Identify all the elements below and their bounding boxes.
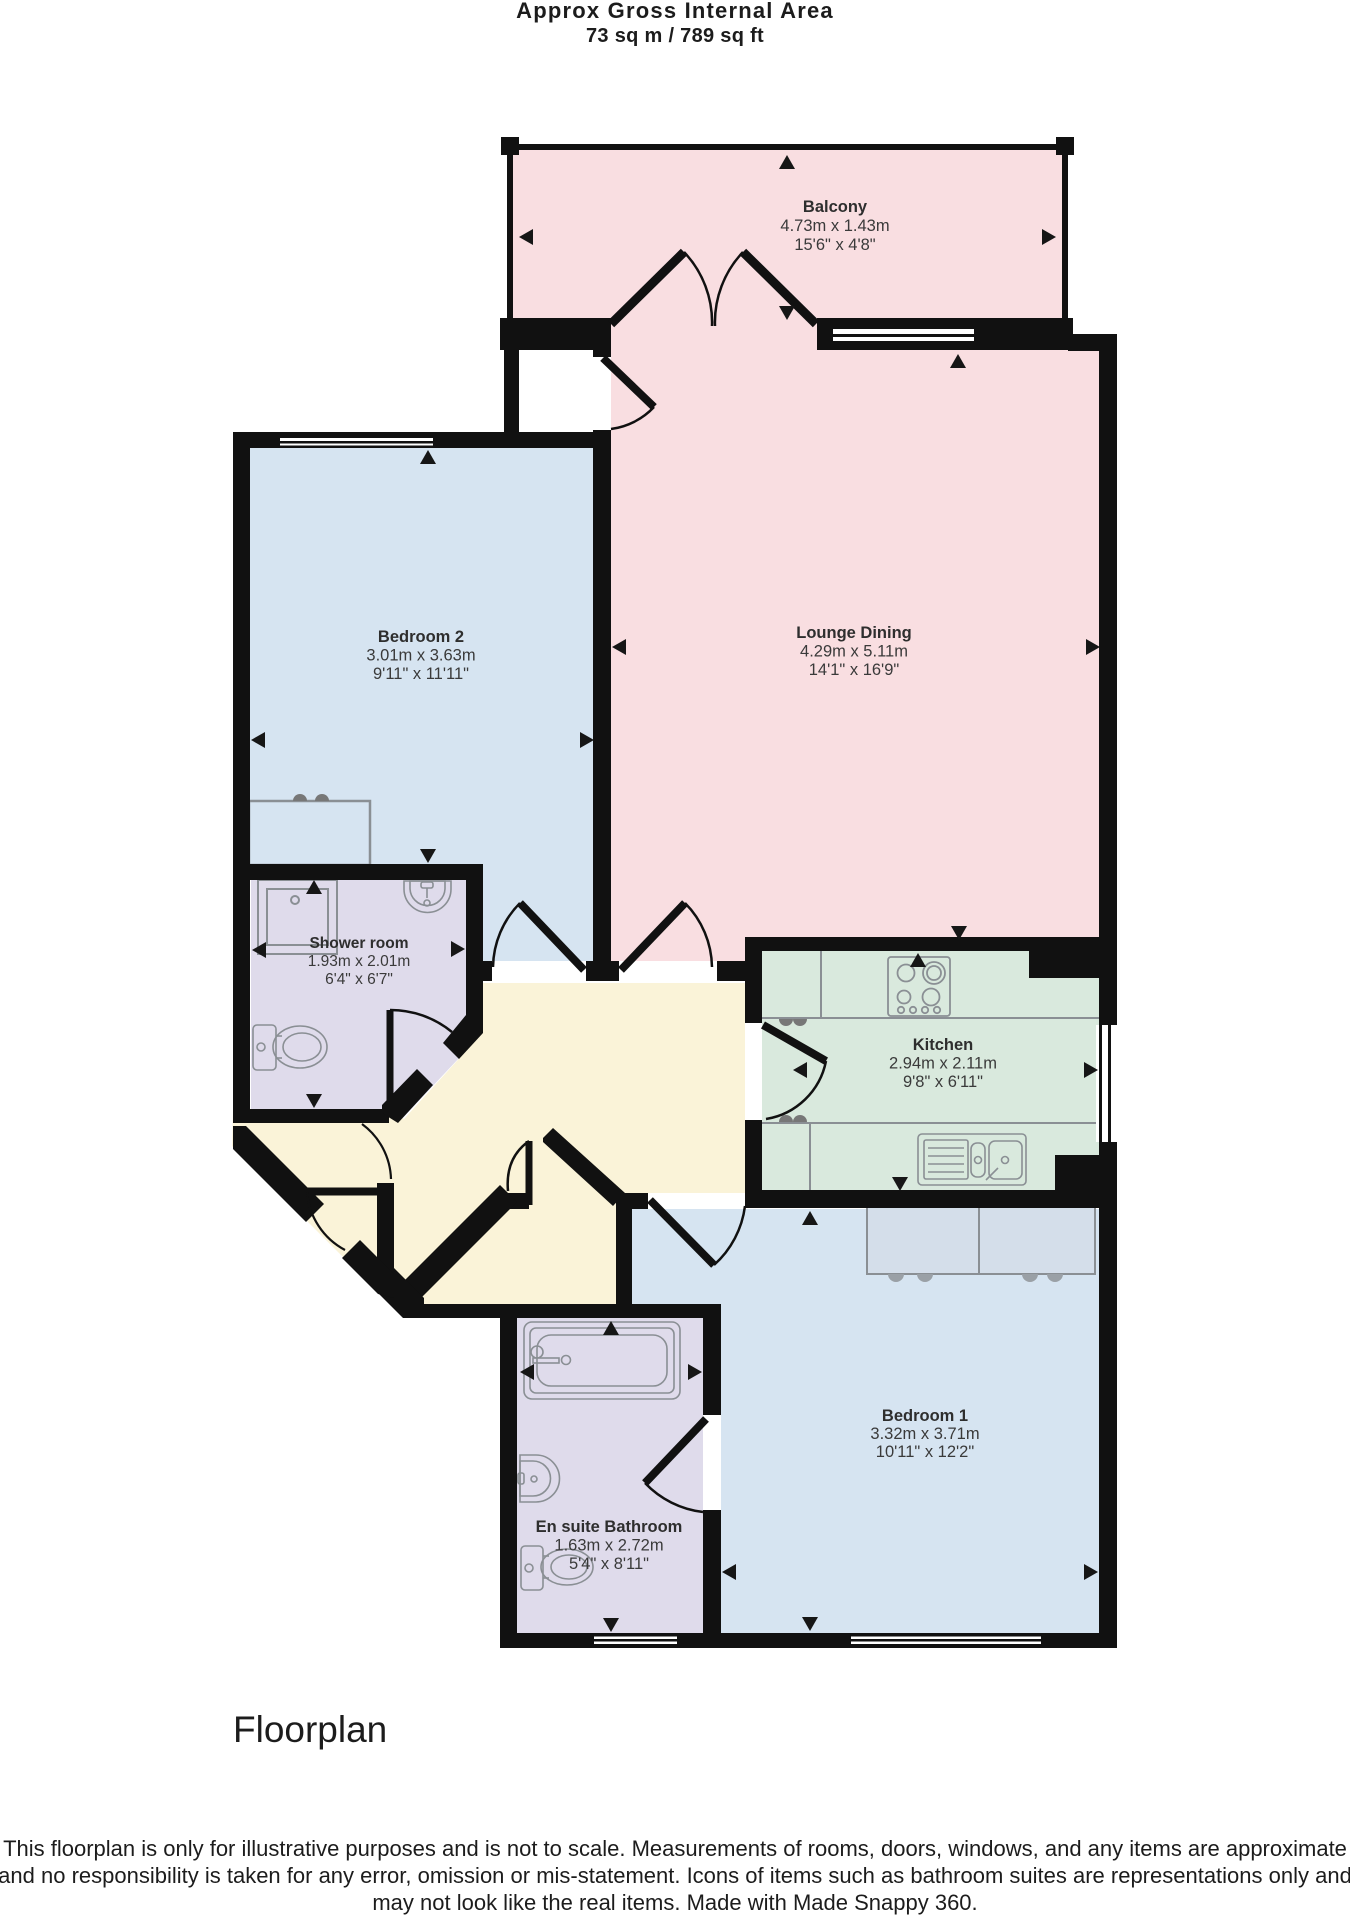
svg-text:3.32m x 3.71m: 3.32m x 3.71m xyxy=(870,1425,979,1443)
svg-text:Shower room: Shower room xyxy=(309,935,408,952)
svg-text:Balcony: Balcony xyxy=(803,198,868,216)
svg-text:9'8" x 6'11": 9'8" x 6'11" xyxy=(903,1073,983,1091)
svg-text:may not look like the real ite: may not look like the real items. Made w… xyxy=(372,1890,977,1915)
svg-text:5'4" x 8'11": 5'4" x 8'11" xyxy=(569,1555,649,1573)
svg-text:Approx Gross Internal Area: Approx Gross Internal Area xyxy=(516,0,834,23)
svg-text:Kitchen: Kitchen xyxy=(913,1036,974,1054)
svg-text:Bedroom 1: Bedroom 1 xyxy=(882,1407,968,1425)
svg-text:4.73m x 1.43m: 4.73m x 1.43m xyxy=(780,217,889,235)
svg-text:1.63m x 2.72m: 1.63m x 2.72m xyxy=(554,1537,663,1555)
svg-text:En suite Bathroom: En suite Bathroom xyxy=(536,1518,683,1536)
svg-text:14'1" x 16'9": 14'1" x 16'9" xyxy=(809,661,900,679)
svg-text:10'11" x 12'2": 10'11" x 12'2" xyxy=(876,1443,975,1461)
svg-text:2.94m x 2.11m: 2.94m x 2.11m xyxy=(889,1055,997,1073)
svg-text:and no responsibility is taken: and no responsibility is taken for any e… xyxy=(0,1863,1350,1888)
svg-text:This floorplan is only for ill: This floorplan is only for illustrative … xyxy=(3,1836,1347,1861)
svg-text:1.93m x 2.01m: 1.93m x 2.01m xyxy=(308,953,411,970)
svg-text:15'6" x 4'8": 15'6" x 4'8" xyxy=(794,236,875,254)
svg-text:Bedroom 2: Bedroom 2 xyxy=(378,628,464,646)
svg-text:4.29m x 5.11m: 4.29m x 5.11m xyxy=(800,643,908,661)
svg-text:Lounge Dining: Lounge Dining xyxy=(796,624,911,642)
svg-text:9'11" x 11'11": 9'11" x 11'11" xyxy=(373,665,469,683)
svg-text:3.01m x 3.63m: 3.01m x 3.63m xyxy=(366,647,475,665)
svg-text:Floorplan: Floorplan xyxy=(233,1709,387,1750)
svg-text:73 sq m / 789 sq ft: 73 sq m / 789 sq ft xyxy=(586,25,764,47)
svg-text:6'4" x 6'7": 6'4" x 6'7" xyxy=(325,971,393,988)
